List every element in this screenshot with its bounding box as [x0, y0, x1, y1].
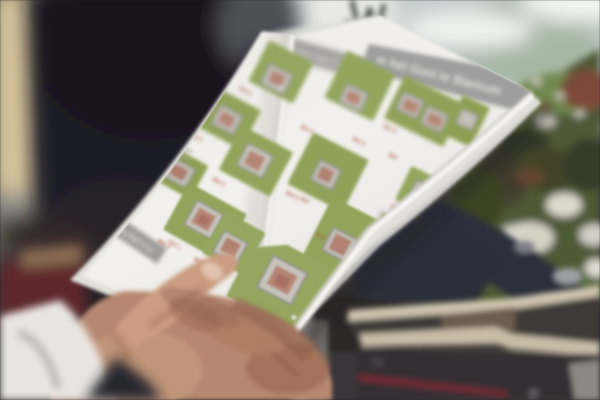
svg-text:M: M: [372, 354, 383, 369]
svg-text:P: P: [530, 387, 539, 400]
